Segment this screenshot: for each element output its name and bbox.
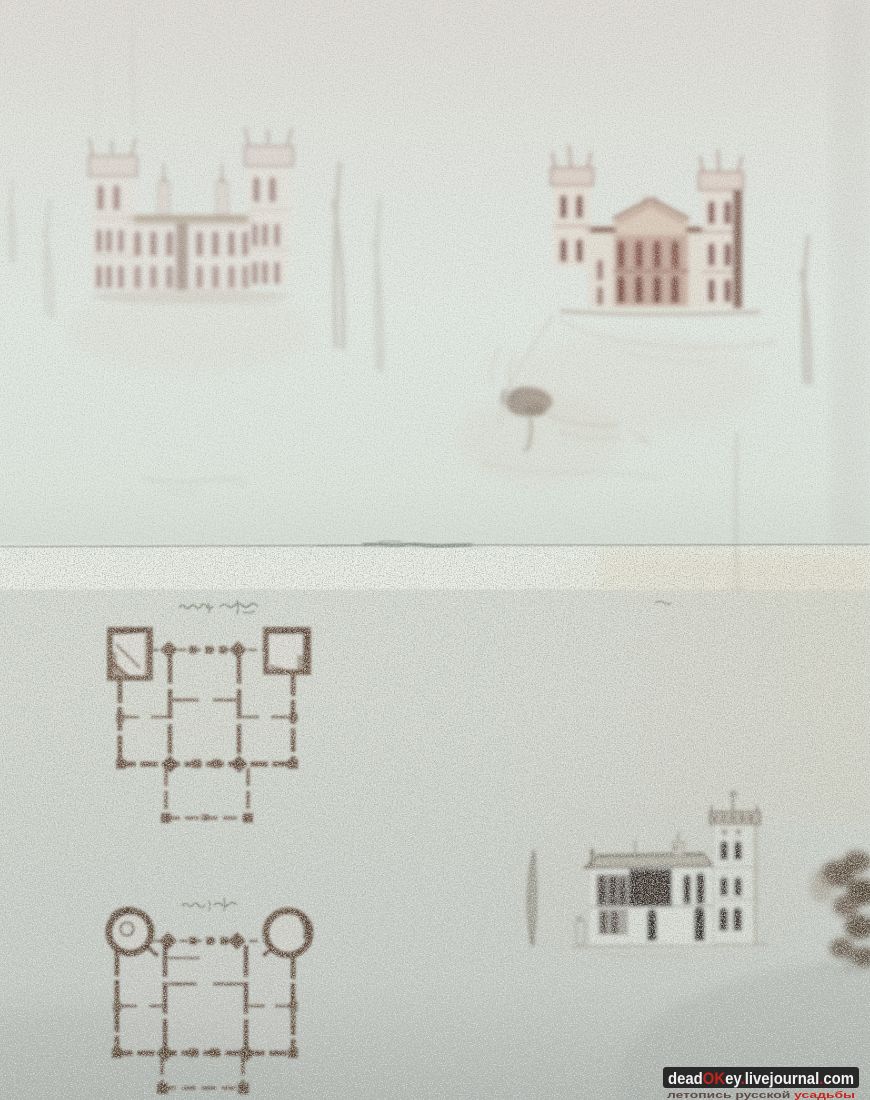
svg-text:deadOKey.livejournal.com: deadOKey.livejournal.com [668, 1069, 854, 1088]
svg-text:летопись русской усадьбы: летопись русской усадьбы [667, 1090, 855, 1100]
